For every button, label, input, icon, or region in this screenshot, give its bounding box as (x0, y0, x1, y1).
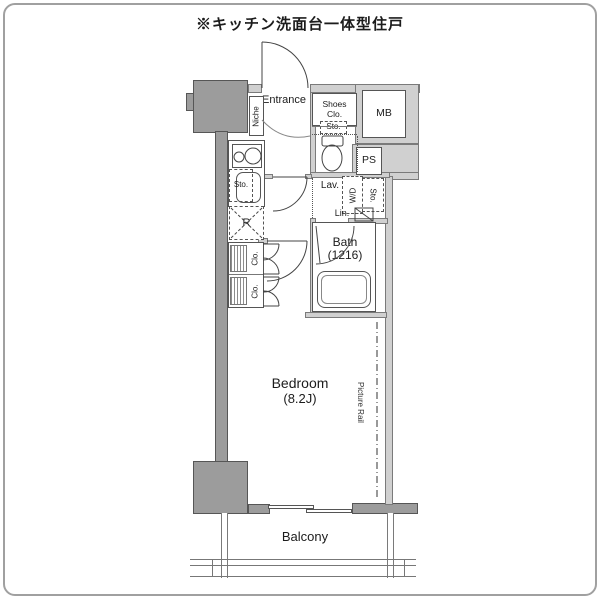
closet-lower: Clo. (246, 275, 264, 307)
bedroom-label: Bedroom (8.2J) (240, 372, 360, 410)
balcony-edge-line-2 (190, 565, 416, 566)
toilet-ps-dotted-line (357, 136, 358, 172)
bottom-wall-left (248, 504, 270, 514)
refrigerator-space: R (229, 206, 264, 240)
closet-upper-label: Clo. (250, 251, 259, 265)
niche-cabinet: Niche (249, 96, 264, 136)
lavatory-label: Lav. (316, 179, 344, 193)
picture-rail: Picture Rail (353, 352, 367, 452)
column-top-left-tab (186, 93, 194, 111)
toilet-nook-dotted-line (312, 134, 357, 135)
balcony-edge-tick-left (212, 559, 213, 577)
shoes-toilet-divider (312, 126, 357, 127)
closet-upper: Clo. (246, 243, 264, 274)
meter-box: MB (362, 90, 406, 138)
right-wall-main (385, 176, 393, 505)
bedroom-name: Bedroom (272, 376, 329, 392)
bath-bottom-wall (305, 312, 387, 318)
bath-name: Bath (333, 236, 358, 249)
lavatory-storage: Sto. (362, 178, 384, 212)
closet-upper-hanger-area (230, 245, 247, 272)
balcony-edge-tick-right (404, 559, 405, 577)
closet-lower-hanger-area (230, 277, 247, 305)
entrance-label: Entrance (258, 92, 310, 108)
balcony-label: Balcony (250, 528, 360, 546)
sliding-window-pane-right (306, 509, 352, 513)
pipe-space: PS (356, 147, 382, 175)
washer-dryer-label: W/D (348, 187, 357, 203)
floorplan-canvas: ※キッチン洗面台一体型住戸 Entrance Niche Shoes Clo. … (0, 0, 600, 599)
balcony-rail-right (387, 513, 394, 578)
bedroom-size: (8.2J) (283, 392, 316, 407)
corridor-door-jamb-right (305, 174, 312, 179)
toilet-storage: Sto. (320, 121, 347, 134)
balcony-edge-line-3 (190, 576, 416, 577)
bathtub-inner (321, 275, 367, 304)
bath-label: Bath (1216) (316, 234, 374, 264)
lavatory-storage-label: Sto. (368, 188, 377, 202)
closet-lower-label: Clo. (250, 284, 259, 298)
niche-label: Niche (252, 106, 261, 126)
plan-title: ※キッチン洗面台一体型住戸 (0, 13, 600, 34)
kitchen-storage: Sto. (229, 169, 253, 202)
column-bottom-left (193, 461, 248, 514)
picture-rail-label: Picture Rail (356, 382, 365, 423)
linen-label: Lin. (330, 207, 354, 220)
lavatory-opening-dotted-line (312, 178, 313, 218)
balcony-edge-line-1 (190, 559, 416, 560)
left-wall (215, 131, 228, 463)
balcony-rail-left (221, 513, 228, 578)
column-top-left (193, 80, 248, 133)
stove (232, 144, 262, 168)
bath-size: (1216) (328, 249, 363, 262)
